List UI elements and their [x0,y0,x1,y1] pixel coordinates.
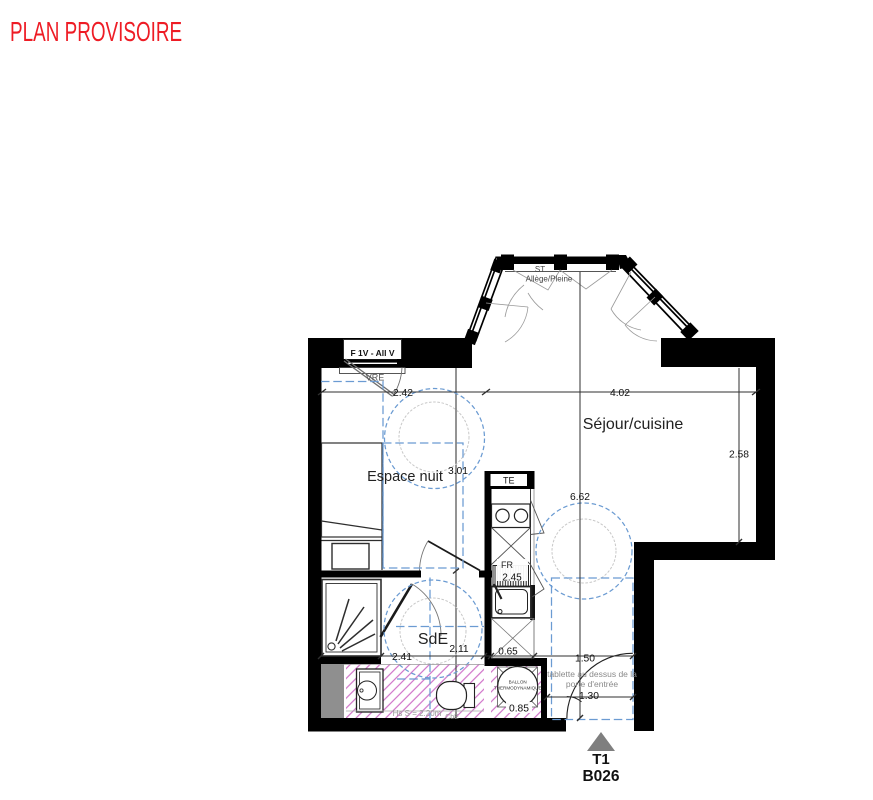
svg-text:0.85: 0.85 [509,704,529,715]
svg-text:FR: FR [501,560,513,570]
svg-text:2.42: 2.42 [393,388,413,399]
svg-text:2.11: 2.11 [449,644,469,655]
svg-text:tablette au dessus de la: tablette au dessus de la [547,669,637,679]
svg-text:3.01: 3.01 [448,466,468,477]
svg-text:Séjour/cuisine: Séjour/cuisine [583,416,684,433]
svg-text:F 1V - All V: F 1V - All V [350,348,394,358]
svg-text:2.41: 2.41 [392,652,412,663]
svg-text:SdE: SdE [418,631,448,648]
svg-text:6.62: 6.62 [570,492,590,503]
svg-text:Hs S = 2.20m: Hs S = 2.20m [393,709,442,718]
svg-text:ST: ST [535,265,545,274]
svg-text:porte d'entrée: porte d'entrée [566,679,618,689]
svg-text:B026: B026 [582,768,619,785]
svg-text:4.02: 4.02 [610,388,630,399]
svg-text:1.30: 1.30 [579,691,599,702]
svg-text:PLAN PROVISOIRE: PLAN PROVISOIRE [10,16,182,48]
svg-text:2.58: 2.58 [729,450,749,461]
svg-text:TE: TE [503,476,515,486]
svg-text:0.65: 0.65 [498,647,518,658]
svg-text:T1: T1 [592,751,610,768]
svg-text:CbE: CbE [445,714,459,721]
svg-text:Allège/Pleine: Allège/Pleine [526,275,573,284]
svg-text:2.45: 2.45 [502,573,522,584]
svg-text:BALLON: BALLON [509,680,527,685]
svg-text:THERMODYNAMIQUE: THERMODYNAMIQUE [494,686,542,691]
svg-text:1.50: 1.50 [575,654,595,665]
svg-text:Espace nuit: Espace nuit [367,469,443,485]
